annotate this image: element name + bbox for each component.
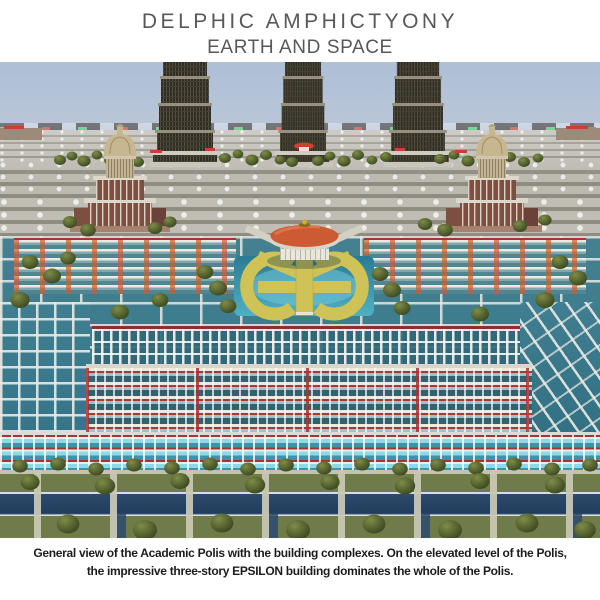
solar-tower-center [273, 62, 332, 167]
page-title: DELPHIC AMPHICTYONY [0, 10, 600, 34]
caption-line-2: the impressive three-story EPSILON build… [0, 562, 600, 580]
capitol-left [70, 124, 170, 232]
capitol-right [442, 124, 542, 232]
rotunda-finial [302, 220, 307, 225]
epsilon-complex [234, 220, 374, 317]
academic-polis-render [0, 62, 600, 538]
solar-tower-right [383, 62, 452, 167]
foreground-trees [12, 458, 598, 539]
caption-line-1: General view of the Academic Polis with … [0, 544, 600, 562]
scene-overlay [0, 62, 600, 538]
page-subtitle: EARTH AND SPACE [0, 37, 600, 59]
page-header: DELPHIC AMPHICTYONY EARTH AND SPACE [0, 10, 600, 59]
rotunda [267, 220, 341, 270]
figure-caption: General view of the Academic Polis with … [0, 544, 600, 580]
